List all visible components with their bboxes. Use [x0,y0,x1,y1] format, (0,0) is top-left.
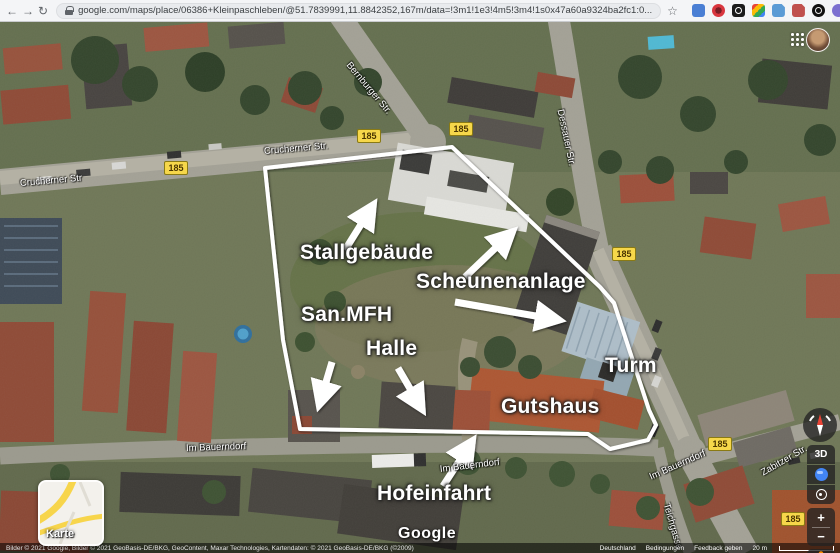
satellite-map-canvas[interactable]: Stallgebäude Scheunenanlage San.MFH Hall… [0,22,840,553]
google-logo: Google [398,525,456,543]
my-location-button[interactable] [807,485,835,504]
google-apps-grid-icon[interactable] [791,33,804,46]
annotation-halle: Halle [366,337,417,361]
extension-icon[interactable] [732,4,745,17]
route-badge-185: 185 [164,161,188,175]
annotation-hofeinfahrt: Hofeinfahrt [377,482,491,506]
extension-icon[interactable] [832,4,840,17]
extension-icon[interactable] [792,4,805,17]
annotation-turm: Turm [605,354,657,378]
url-text[interactable]: google.com/maps/place/06386+Kleinpaschle… [78,5,652,16]
route-badge-185: 185 [612,247,636,261]
back-icon[interactable]: ← [6,3,18,19]
account-avatar[interactable] [806,28,830,52]
my-location-icon [816,489,827,500]
annotation-san-mfh: San.MFH [301,303,392,327]
reload-icon[interactable]: ↻ [38,3,48,19]
route-badge-185: 185 [708,437,732,451]
extension-icon[interactable] [812,4,825,17]
zoom-control: + − [807,508,835,546]
zoom-in-button[interactable]: + [807,508,835,527]
forward-icon[interactable]: → [22,3,34,19]
compass-needle-icon [807,412,833,438]
route-badge-185: 185 [781,512,805,526]
browser-toolbar: ← → ↻ google.com/maps/place/06386+Kleinp… [0,0,840,22]
route-badge-185: 185 [357,129,381,143]
annotation-stallgebaeude: Stallgebäude [300,241,433,265]
annotation-scheunenanlage: Scheunenanlage [416,270,586,294]
terms-link[interactable]: Bedingungen [646,545,684,552]
annotation-gutshaus: Gutshaus [501,395,599,419]
bookmark-star-icon[interactable]: ☆ [667,4,678,18]
globe-icon [815,468,828,481]
globe-button[interactable] [807,465,835,484]
pegman-button[interactable] [807,549,835,553]
street-label: Im Bauerndorf [186,441,247,454]
address-bar[interactable]: google.com/maps/place/06386+Kleinpaschle… [56,3,661,19]
country-link[interactable]: Deutschland [600,545,636,552]
compass-control[interactable] [803,408,837,442]
map-type-label: Karte [46,528,74,540]
scale-label: 20 m [753,545,767,552]
tilt-3d-button[interactable]: 3D [807,445,835,464]
extensions-row [692,4,840,17]
lock-icon [65,6,73,15]
map-type-toggle[interactable]: Karte [38,480,104,546]
extension-icon[interactable] [712,4,725,17]
feedback-link[interactable]: Feedback geben [694,545,742,552]
zoom-out-button[interactable]: − [807,528,835,547]
attribution-bar: Bilder © 2021 Google, Bilder © 2021 GeoB… [0,543,840,553]
extension-icon[interactable] [772,4,785,17]
extension-icon[interactable] [692,4,705,17]
extension-icon[interactable] [752,4,765,17]
route-badge-185: 185 [449,122,473,136]
